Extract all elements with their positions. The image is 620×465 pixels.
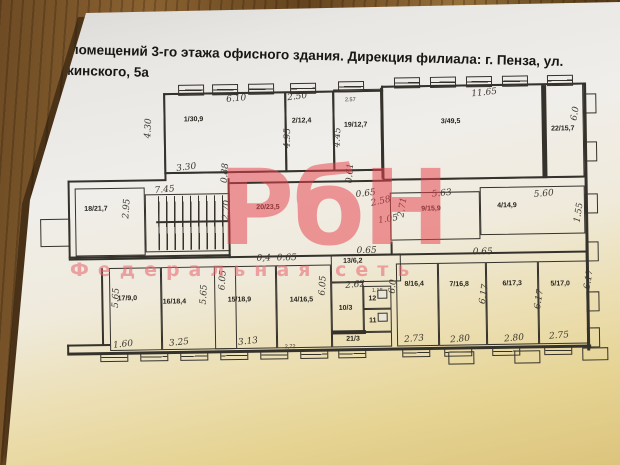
room-label-r4: 4/14,9	[497, 202, 517, 209]
window-mark	[547, 75, 573, 86]
room-label-r5: 5/17,0	[550, 280, 570, 287]
room-label-r22: 22/15,7	[551, 125, 574, 132]
dimension-d31: 2.73	[404, 333, 425, 345]
dimension-d39: 6.0	[388, 279, 399, 294]
window-mark	[260, 350, 288, 359]
dimension-d29: 2.62	[345, 279, 366, 291]
wall-bump	[40, 219, 70, 247]
window-mark	[140, 352, 168, 361]
pilaster	[586, 241, 599, 261]
room-r18	[75, 187, 146, 256]
room-label-r2: 2/12,4	[292, 117, 312, 124]
wall	[332, 330, 366, 335]
wall	[67, 345, 69, 354]
room-label-r7: 7/16,8	[449, 281, 469, 288]
watermark-subtitle: Федеральная сеть	[70, 259, 418, 281]
dimension-d5: 2.57	[345, 97, 356, 103]
pilaster	[583, 93, 596, 113]
window-sill	[514, 350, 540, 363]
pilaster	[586, 291, 599, 311]
window-mark	[338, 81, 364, 92]
room-label-r18: 18/21,7	[84, 206, 107, 213]
dimension-d10: 7.45	[154, 184, 175, 196]
watermark-logo: РбН	[218, 156, 448, 260]
window-mark	[178, 84, 204, 95]
photo-of-floor-plan-document: { "title": { "line1": "План помещений 3-…	[0, 0, 620, 465]
dimension-d34: 2.75	[549, 330, 570, 342]
room-r4	[480, 186, 586, 236]
window-mark	[180, 351, 208, 360]
dimension-d35: 5.65	[111, 288, 122, 309]
window-sill	[582, 347, 608, 360]
pilaster	[585, 193, 598, 213]
window-mark	[220, 351, 248, 360]
room-label-r12: 12	[368, 295, 376, 302]
room-label-r3: 3/49,5	[441, 118, 461, 125]
wall	[68, 179, 167, 183]
pilaster	[587, 327, 600, 347]
window-mark	[394, 77, 420, 88]
dimension-d32: 2.80	[450, 334, 471, 346]
room-r6	[486, 261, 539, 345]
dimension-d26: 3.25	[169, 337, 190, 349]
room-label-r11: 11	[369, 317, 377, 324]
window-mark	[248, 83, 274, 94]
toilet-fixture	[378, 313, 388, 322]
dimension-d2: 4.30	[143, 118, 154, 139]
dimension-d19: 5.60	[533, 188, 554, 200]
room-label-r15: 15/18,9	[228, 296, 251, 303]
window-mark	[466, 76, 492, 87]
window-mark	[212, 84, 238, 95]
window-mark	[290, 83, 316, 94]
dimension-d33: 2.80	[504, 333, 525, 345]
window-mark	[502, 75, 528, 86]
room-label-r19: 19/12,7	[344, 121, 367, 128]
room-label-r1: 1/30,9	[184, 116, 204, 123]
window-mark	[300, 350, 328, 359]
dimension-d25: 1.60	[113, 339, 134, 351]
wall	[164, 173, 166, 180]
room-label-r21: 21/3	[346, 336, 360, 343]
room-label-r6: 6/17,3	[502, 280, 522, 287]
toilet-fixture	[377, 290, 387, 299]
dimension-d27: 3.13	[238, 336, 259, 348]
window-mark	[338, 349, 366, 358]
window-sill	[448, 351, 474, 364]
dimension-d36: 5.65	[199, 284, 210, 305]
dimension-d11: 2.95	[121, 198, 132, 219]
room-label-r14: 14/16,5	[290, 296, 313, 303]
window-mark	[402, 348, 430, 357]
paper-document: План помещений 3-го этажа офисного здани…	[0, 0, 620, 465]
room-label-r16: 16/18,4	[163, 298, 186, 305]
window-mark	[430, 77, 456, 88]
room-label-r8: 8/16,4	[404, 281, 424, 288]
pilaster	[584, 141, 597, 161]
window-mark	[544, 346, 572, 355]
window-mark	[100, 353, 128, 362]
room-label-r10: 10/3	[339, 305, 353, 312]
wall	[67, 344, 110, 347]
